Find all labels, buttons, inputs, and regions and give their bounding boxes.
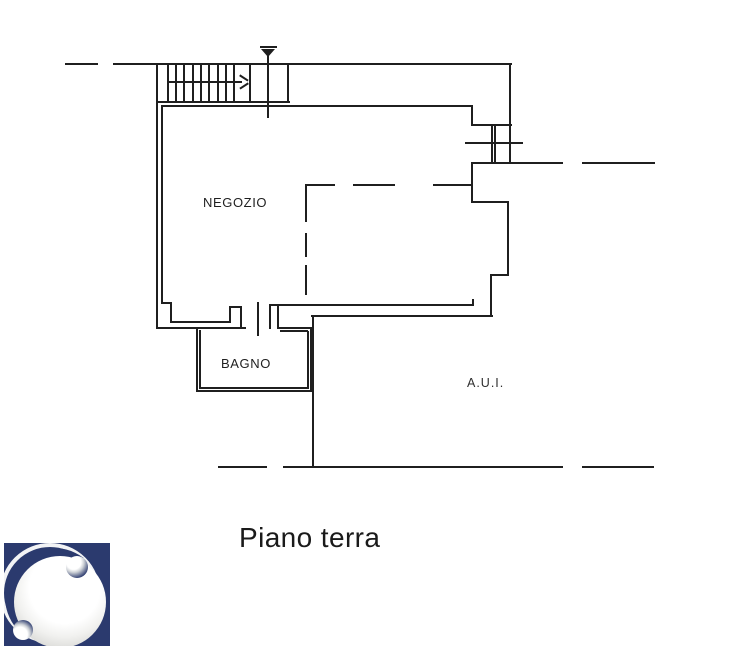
wall-line-h (113, 63, 512, 65)
wall-line-v (287, 63, 289, 103)
wall-line-h (65, 63, 98, 65)
stair-tread-line (225, 63, 227, 103)
wall-line-v (229, 306, 231, 322)
wall-line-v (472, 299, 474, 305)
wall-line-v (267, 55, 269, 118)
wall-line-v (509, 63, 511, 163)
wall-line-v (269, 304, 271, 329)
wall-line-h (471, 201, 509, 203)
agency-logo (4, 543, 110, 646)
dashed-partition-segment-h (353, 184, 395, 186)
wall-line-v (199, 330, 201, 388)
wall-line-v (471, 105, 473, 125)
plan-title: Piano terra (239, 522, 380, 554)
wall-line-v (196, 327, 198, 391)
wall-line-v (161, 105, 163, 303)
wall-line-h (582, 466, 654, 468)
floor-plan-image: NEGOZIO BAGNO A.U.I. Piano terra (0, 0, 729, 646)
stair-tread-line (183, 63, 185, 103)
room-label-negozio: NEGOZIO (203, 195, 267, 210)
stair-tread-line (192, 63, 194, 103)
wall-line-h (277, 327, 313, 329)
dashed-partition-segment-v (305, 184, 307, 222)
stair-tread-line (233, 63, 235, 103)
wall-line-h (170, 321, 231, 323)
wall-line-v (307, 331, 309, 388)
dashed-partition-segment-h (305, 184, 335, 186)
wall-line-h (269, 304, 474, 306)
wall-line-h (311, 315, 493, 317)
stair-tread-line (217, 63, 219, 103)
stair-arrow-head-icon (239, 82, 248, 89)
wall-line-h (218, 466, 267, 468)
wall-line-v (249, 63, 251, 103)
wall-line-h (167, 81, 242, 83)
wall-line-h (283, 466, 563, 468)
room-label-aui: A.U.I. (467, 376, 504, 390)
room-label-bagno: BAGNO (221, 356, 271, 371)
wall-line-v (491, 124, 493, 163)
wall-line-v (277, 304, 279, 329)
dashed-partition-segment-v (305, 233, 307, 257)
wall-line-v (494, 124, 496, 163)
stair-tread-line (167, 63, 169, 103)
logo-satellite-ball-icon (13, 620, 33, 640)
wall-line-v (471, 162, 473, 202)
stair-tread-line (175, 63, 177, 103)
wall-line-h (156, 327, 246, 329)
wall-line-h (196, 390, 313, 392)
logo-satellite-ball-icon (66, 556, 88, 578)
wall-line-h (471, 162, 563, 164)
wall-line-v (507, 201, 509, 275)
wall-line-v (257, 302, 259, 336)
wall-line-v (490, 274, 492, 316)
stair-tread-line (208, 63, 210, 103)
wall-line-h (161, 105, 473, 107)
wall-line-v (170, 302, 172, 322)
wall-line-h (199, 387, 309, 389)
wall-line-v (240, 306, 242, 328)
dashed-partition-segment-v (305, 265, 307, 295)
wall-line-h (582, 162, 655, 164)
wall-line-h (158, 101, 290, 103)
wall-line-v (156, 63, 158, 328)
vent-symbol-bar (260, 46, 277, 48)
wall-line-v (312, 315, 314, 468)
dashed-partition-segment-h (433, 184, 472, 186)
stair-tread-line (200, 63, 202, 103)
wall-line-h (280, 330, 308, 332)
